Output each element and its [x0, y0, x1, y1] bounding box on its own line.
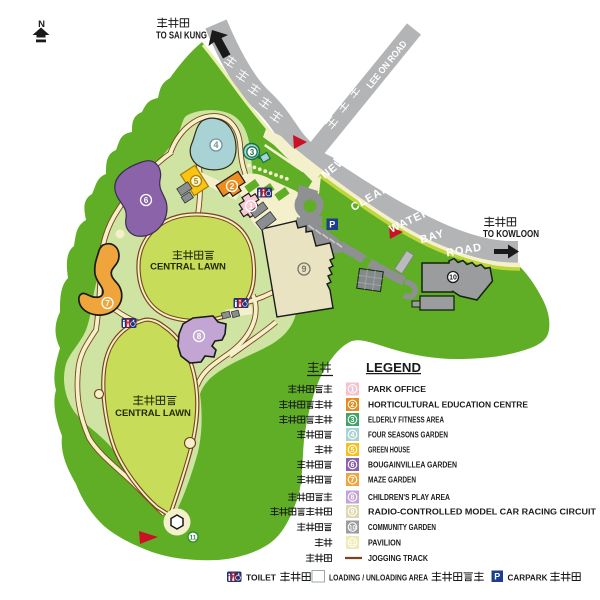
- svg-text:11: 11: [190, 534, 197, 541]
- svg-text:11: 11: [349, 540, 356, 547]
- svg-text:3: 3: [351, 417, 355, 424]
- svg-text:TOILET: TOILET: [246, 573, 277, 583]
- svg-text:9: 9: [301, 264, 306, 274]
- svg-text:ELDERLY FITNESS AREA: ELDERLY FITNESS AREA: [368, 415, 444, 425]
- svg-text:COMMUNITY GARDEN: COMMUNITY GARDEN: [368, 522, 436, 532]
- svg-text:2: 2: [230, 182, 235, 191]
- svg-text:2: 2: [351, 402, 355, 409]
- svg-text:P: P: [329, 220, 335, 230]
- svg-text:7: 7: [105, 299, 110, 308]
- svg-text:TO KOWLOON: TO KOWLOON: [483, 228, 539, 240]
- svg-text:LOADING / UNLOADING AREA: LOADING / UNLOADING AREA: [329, 573, 428, 583]
- svg-text:10: 10: [449, 275, 457, 282]
- svg-text:MAZE GARDEN: MAZE GARDEN: [368, 475, 416, 485]
- svg-text:PARK OFFICE: PARK OFFICE: [368, 384, 426, 394]
- svg-text:LEGEND: LEGEND: [366, 361, 421, 375]
- svg-text:4: 4: [351, 432, 355, 439]
- svg-text:1: 1: [249, 202, 254, 211]
- svg-text:GREEN HOUSE: GREEN HOUSE: [368, 445, 410, 455]
- svg-text:8: 8: [351, 494, 355, 501]
- svg-text:BOUGAINVILLEA GARDEN: BOUGAINVILLEA GARDEN: [368, 460, 457, 470]
- svg-text:10: 10: [349, 524, 357, 531]
- svg-text:8: 8: [197, 332, 202, 341]
- svg-text:JOGGING TRACK: JOGGING TRACK: [368, 553, 429, 563]
- svg-text:CHILDREN'S PLAY AREA: CHILDREN'S PLAY AREA: [368, 492, 450, 502]
- svg-text:FOUR SEASONS GARDEN: FOUR SEASONS GARDEN: [368, 430, 448, 440]
- svg-text:1: 1: [351, 386, 355, 393]
- svg-text:5: 5: [194, 177, 199, 186]
- svg-text:5: 5: [351, 447, 355, 454]
- svg-text:PAVILION: PAVILION: [368, 538, 401, 548]
- svg-text:CENTRAL LAWN: CENTRAL LAWN: [115, 408, 191, 419]
- svg-text:3: 3: [250, 148, 255, 157]
- svg-text:7: 7: [351, 477, 355, 484]
- svg-text:9: 9: [351, 509, 355, 516]
- svg-text:4: 4: [213, 140, 218, 150]
- svg-text:6: 6: [144, 196, 149, 205]
- svg-text:RADIO-CONTROLLED MODEL CAR RAC: RADIO-CONTROLLED MODEL CAR RACING CIRCUI…: [368, 507, 597, 517]
- svg-text:6: 6: [351, 462, 355, 469]
- svg-text:TO SAI KUNG: TO SAI KUNG: [156, 30, 207, 42]
- svg-text:HORTICULTURAL EDUCATION CENTRE: HORTICULTURAL EDUCATION CENTRE: [368, 400, 528, 410]
- svg-text:P: P: [494, 572, 500, 582]
- svg-text:CENTRAL LAWN: CENTRAL LAWN: [150, 262, 226, 273]
- svg-text:CARPARK: CARPARK: [508, 573, 549, 583]
